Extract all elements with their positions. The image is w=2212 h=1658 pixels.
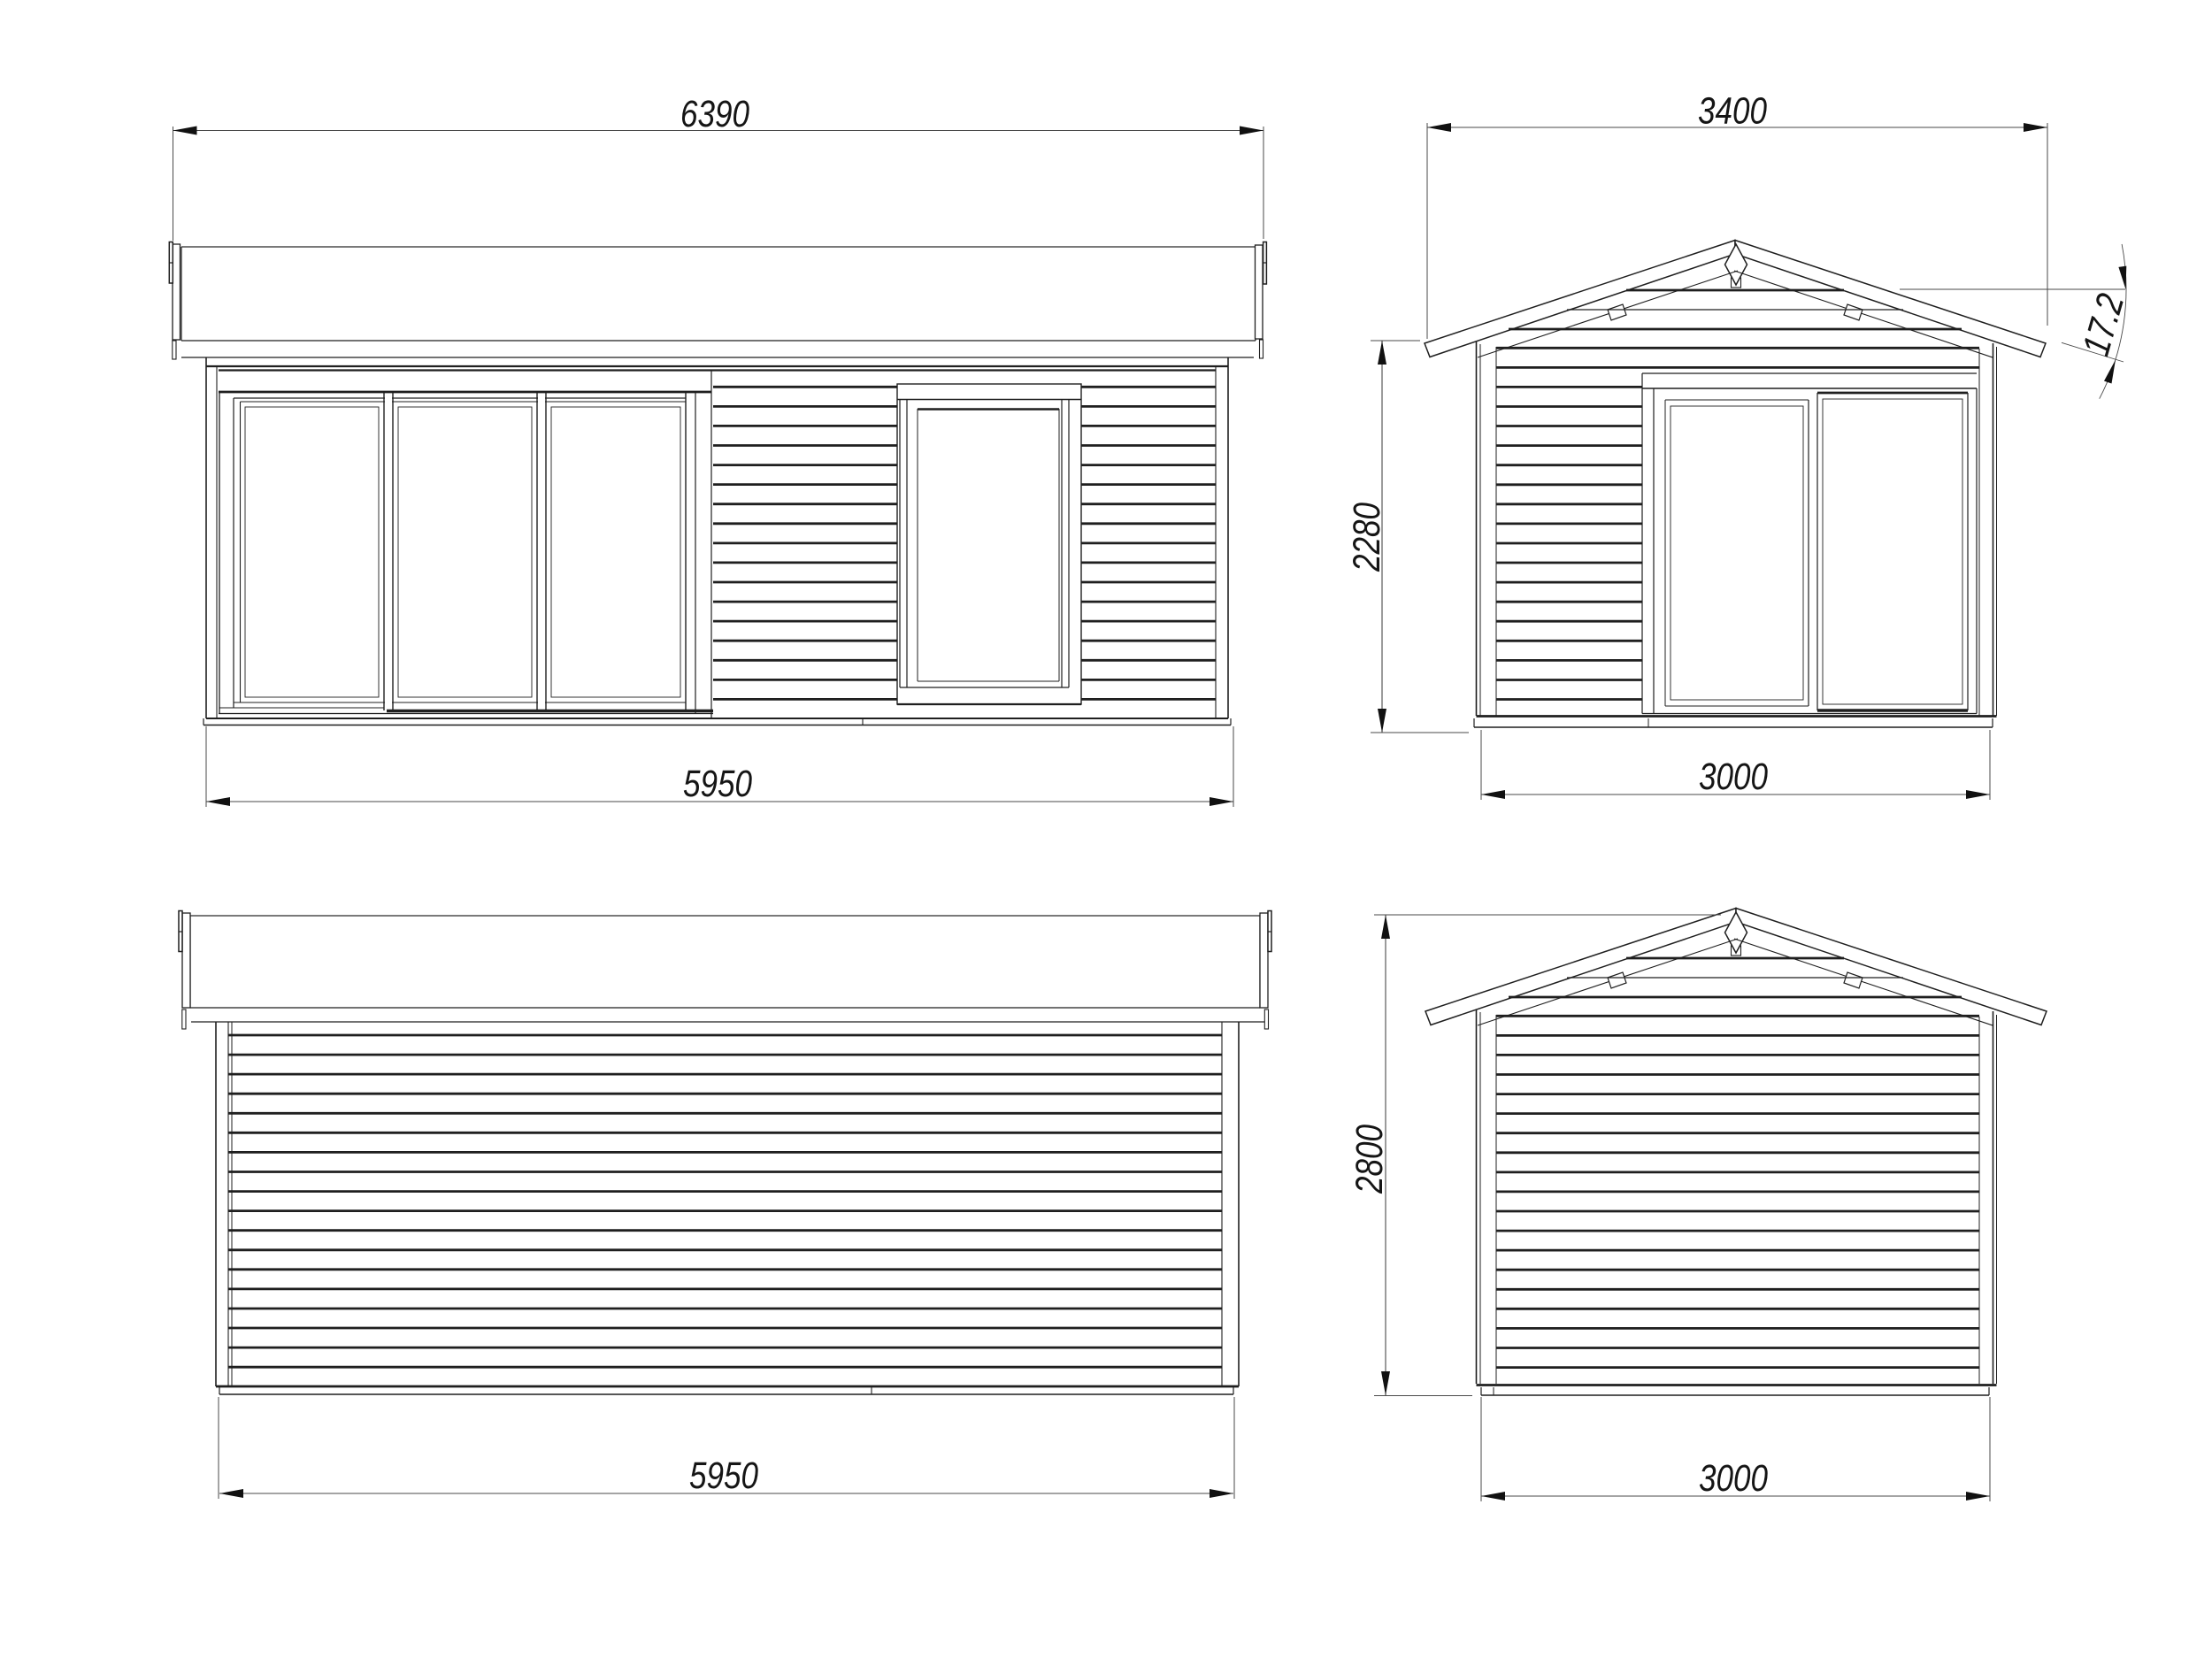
svg-text:3000: 3000 xyxy=(1699,756,1768,798)
svg-text:2800: 2800 xyxy=(1348,1125,1391,1194)
svg-text:5950: 5950 xyxy=(689,1455,758,1497)
svg-text:3400: 3400 xyxy=(1698,90,1767,133)
svg-text:6390: 6390 xyxy=(680,93,749,135)
svg-text:3000: 3000 xyxy=(1699,1457,1768,1500)
svg-text:2280: 2280 xyxy=(1346,503,1388,572)
svg-text:5950: 5950 xyxy=(683,763,752,805)
